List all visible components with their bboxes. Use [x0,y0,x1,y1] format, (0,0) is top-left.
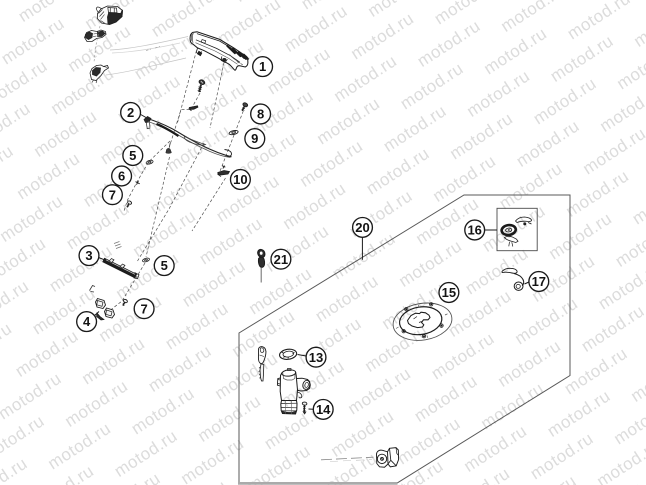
svg-text:motod.ru: motod.ru [578,301,646,356]
svg-text:5: 5 [129,148,136,163]
svg-text:motod.ru: motod.ru [177,434,247,485]
svg-text:8: 8 [257,107,264,122]
svg-text:2: 2 [127,105,134,120]
svg-text:4: 4 [83,314,91,329]
svg-text:motod.ru: motod.ru [0,454,31,485]
svg-text:10: 10 [233,172,247,187]
svg-text:7: 7 [140,301,147,316]
svg-text:15: 15 [442,285,456,300]
svg-text:9: 9 [251,131,258,146]
svg-text:20: 20 [355,220,369,235]
svg-text:21: 21 [274,252,288,267]
svg-text:5: 5 [161,258,168,273]
svg-text:6: 6 [118,169,125,184]
svg-text:14: 14 [316,402,331,417]
svg-text:1: 1 [259,59,266,74]
svg-text:7: 7 [109,187,116,202]
svg-text:17: 17 [532,274,546,289]
svg-text:13: 13 [309,350,323,365]
svg-text:motod.ru: motod.ru [630,0,646,51]
svg-text:3: 3 [85,248,92,263]
svg-text:16: 16 [467,223,481,238]
